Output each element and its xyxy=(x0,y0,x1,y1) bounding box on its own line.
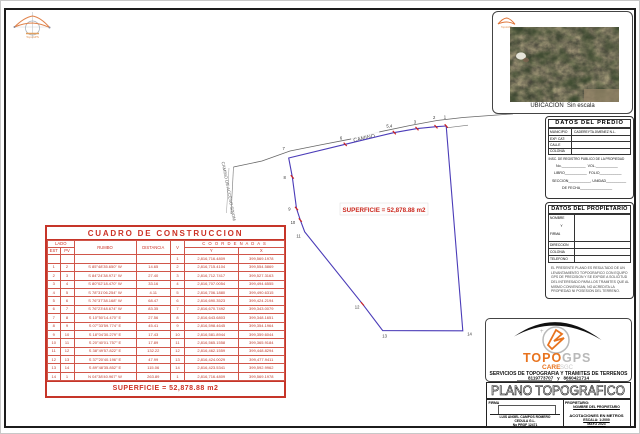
svg-text:5,4: 5,4 xyxy=(386,124,392,129)
svg-text:10: 10 xyxy=(291,220,296,225)
svg-text:2: 2 xyxy=(433,115,436,120)
svg-text:12: 12 xyxy=(355,304,360,309)
svg-text:7: 7 xyxy=(283,146,286,151)
svg-text:+: + xyxy=(540,329,544,335)
svg-text:TOPO: TOPO xyxy=(523,351,562,365)
svg-text:8: 8 xyxy=(284,175,287,180)
svg-text:9: 9 xyxy=(288,206,291,211)
svg-text:6: 6 xyxy=(340,135,343,140)
svg-text:CARE: CARE xyxy=(542,364,561,371)
svg-text:14: 14 xyxy=(467,331,472,336)
svg-text:11: 11 xyxy=(296,234,301,239)
svg-text:GPS: GPS xyxy=(562,351,591,365)
svg-text:SUPERFICIE = 52,878.88 m2: SUPERFICIE = 52,878.88 m2 xyxy=(343,207,426,214)
svg-text:8119773707 y 8660421714: 8119773707 y 8660421714 xyxy=(528,376,590,381)
svg-text:13: 13 xyxy=(382,334,387,339)
svg-text:3: 3 xyxy=(414,120,417,125)
svg-text:1: 1 xyxy=(444,114,447,119)
svg-text:PLANO TOPOGRAFICO: PLANO TOPOGRAFICO xyxy=(491,383,625,398)
